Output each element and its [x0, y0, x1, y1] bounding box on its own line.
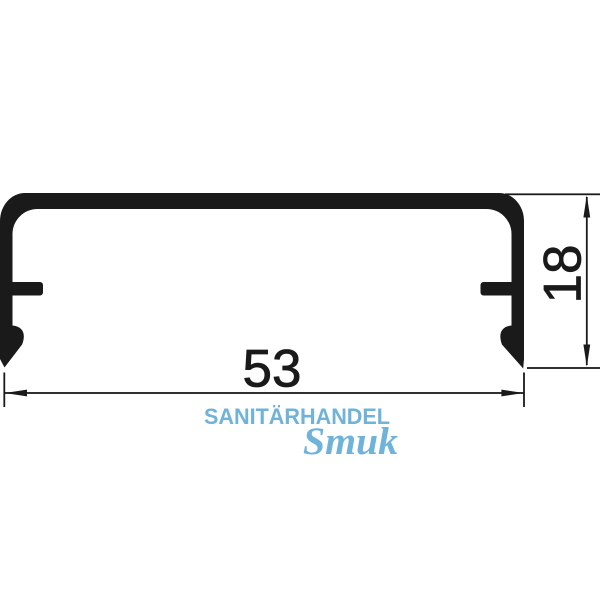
svg-text:18: 18	[534, 245, 593, 304]
svg-text:Smuk: Smuk	[303, 420, 399, 463]
svg-text:53: 53	[243, 340, 302, 399]
